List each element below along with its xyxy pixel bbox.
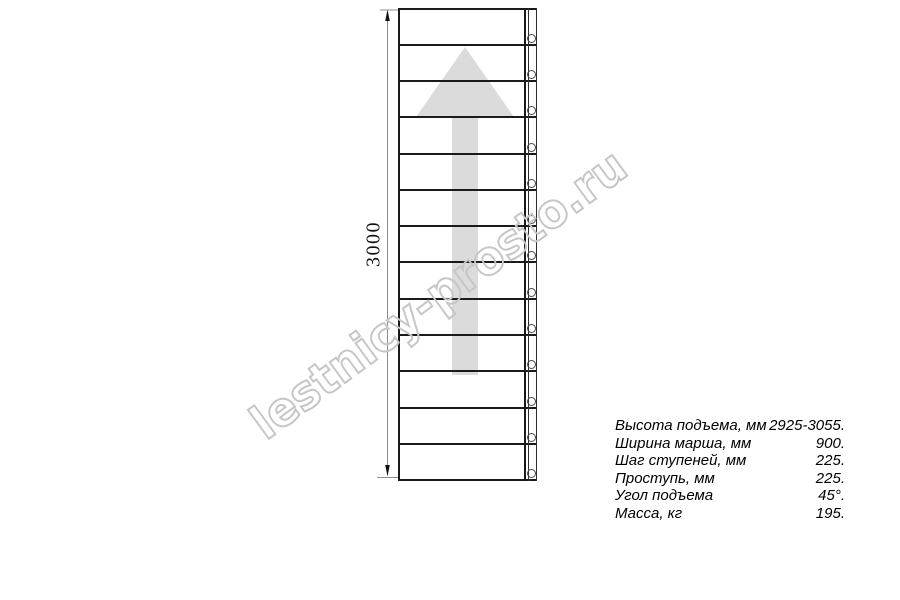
step-line [398, 153, 537, 155]
bolt-hole-icon [527, 251, 536, 260]
step-line [398, 116, 537, 118]
step-line [398, 261, 537, 263]
drawing-canvas: 3000 Высота подъема, мм 2925-3055. Ширин… [0, 0, 900, 600]
spec-value: 900. [816, 435, 845, 453]
step-line [398, 80, 537, 82]
spec-row: Масса, кг 195. [615, 505, 845, 523]
spec-row: Шаг ступеней, мм 225. [615, 452, 845, 470]
stringer-right-edge [536, 8, 537, 481]
spec-label: Шаг ступеней, мм [615, 452, 746, 470]
spec-value: 2925-3055. [769, 417, 845, 435]
spec-label: Проступь, мм [615, 470, 715, 488]
bolt-hole-icon [527, 215, 536, 224]
spec-label: Высота подъема, мм [615, 417, 767, 435]
bolt-hole-icon [527, 34, 536, 43]
spec-label: Ширина марша, мм [615, 435, 751, 453]
bolt-hole-icon [527, 360, 536, 369]
bolt-hole-icon [527, 433, 536, 442]
step-line [398, 44, 537, 46]
spec-row: Ширина марша, мм 900. [615, 435, 845, 453]
step-line [398, 298, 537, 300]
stringer-left-edge [528, 8, 529, 481]
bolt-hole-icon [527, 288, 536, 297]
flight-edge-line [398, 479, 537, 481]
spec-label: Угол подъема [615, 487, 713, 505]
bolt-hole-icon [527, 143, 536, 152]
bolt-hole-icon [527, 70, 536, 79]
spec-value: 225. [816, 470, 845, 488]
step-line [398, 225, 537, 227]
step-line [398, 407, 537, 409]
bolt-hole-icon [527, 106, 536, 115]
step-line [398, 334, 537, 336]
spec-value: 225. [816, 452, 845, 470]
flight-edge-line [398, 8, 537, 10]
step-line [398, 370, 537, 372]
flight-left-edge [398, 8, 400, 481]
spec-row: Высота подъема, мм 2925-3055. [615, 417, 845, 435]
step-line [398, 443, 537, 445]
step-line [398, 189, 537, 191]
spec-value: 195. [816, 505, 845, 523]
bolt-hole-icon [527, 469, 536, 478]
spec-table: Высота подъема, мм 2925-3055. Ширина мар… [615, 417, 845, 522]
spec-row: Угол подъема 45°. [615, 487, 845, 505]
flight-right-edge [524, 8, 526, 481]
bolt-hole-icon [527, 324, 536, 333]
dimension-arrowhead-up-icon [385, 10, 390, 22]
dimension-arrowhead-down-icon [385, 465, 390, 477]
direction-up-arrow-icon [416, 47, 514, 375]
dimension-label: 3000 [363, 221, 386, 267]
spec-row: Проступь, мм 225. [615, 470, 845, 488]
watermark-text: lestnicy-prosto.ru [241, 139, 638, 451]
bolt-hole-icon [527, 179, 536, 188]
spec-value: 45°. [818, 487, 845, 505]
bolt-hole-icon [527, 397, 536, 406]
spec-label: Масса, кг [615, 505, 682, 523]
